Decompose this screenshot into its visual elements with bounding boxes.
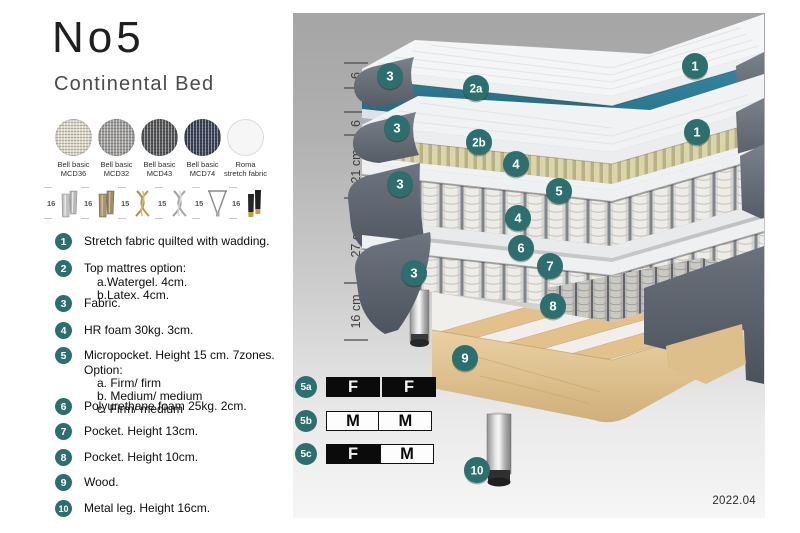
spec-item-text: Metal leg. Height 16cm.	[84, 501, 210, 516]
firmness-cell: F	[326, 444, 380, 464]
firmness-row-label: 5c	[295, 443, 317, 465]
spec-item-text: Pocket. Height 13cm.	[84, 424, 198, 439]
spec-item: 3 Fabric.	[55, 295, 121, 312]
callout-8: 8	[540, 293, 566, 321]
fabric-swatch-icon	[227, 119, 264, 156]
fabric-swatches: Bell basicMCD36 Bell basicMCD32 Bell bas…	[52, 119, 268, 178]
metal-leg-front	[487, 412, 511, 487]
svg-text:6: 6	[517, 241, 524, 256]
leg-height: 15	[195, 199, 203, 208]
leg-height: 16	[47, 199, 55, 208]
spec-item: 8 Pocket. Height 10cm.	[55, 449, 198, 466]
svg-text:9: 9	[461, 351, 468, 366]
spec-item-text: Polyurethane foam 25kg. 2cm.	[84, 399, 247, 414]
callout-6: 6	[508, 235, 534, 263]
spec-item-text: Fabric.	[84, 296, 121, 311]
spec-item-text: Stretch fabric quilted with wadding.	[84, 234, 269, 249]
fabric-swatch: Bell basicMCD32	[95, 119, 138, 178]
spec-item-badge: 9	[55, 474, 72, 491]
firmness-row-label: 5b	[295, 410, 317, 432]
spec-item: 4 HR foam 30kg. 3cm.	[55, 322, 193, 339]
callout-3b: 3	[384, 115, 410, 143]
spec-item: 6 Polyurethane foam 25kg. 2cm.	[55, 398, 247, 415]
cylinder-bronze-leg-icon	[94, 188, 119, 218]
leg-option: 15	[121, 186, 158, 220]
cylinder-black-gold-leg-icon	[242, 188, 267, 218]
leg-height: 16	[232, 199, 240, 208]
spec-item-text: Wood.	[84, 475, 118, 490]
spec-item-badge: 7	[55, 423, 72, 440]
callout-3: 3	[377, 63, 403, 91]
svg-text:10: 10	[471, 465, 484, 477]
version-label: 2022.04	[712, 495, 756, 507]
firmness-cell: F	[382, 377, 436, 397]
twisted-silver-leg-icon	[168, 188, 192, 218]
firmness-cell: F	[326, 377, 380, 397]
firmness-row: 5b M M	[295, 410, 432, 432]
callout-2b: 2b	[466, 129, 492, 157]
fabric-swatch-icon	[98, 119, 135, 156]
spec-subitem: a.Watergel. 4cm.	[97, 276, 187, 289]
svg-text:8: 8	[549, 299, 556, 314]
page-subtitle: Continental Bed	[54, 73, 214, 96]
callout-1: 1	[682, 53, 708, 81]
svg-text:7: 7	[546, 259, 553, 274]
callout-4: 4	[503, 151, 529, 179]
callout-5: 5	[546, 178, 572, 206]
svg-text:3: 3	[386, 69, 393, 84]
spec-item-text: Pocket. Height 10cm.	[84, 450, 198, 465]
callout-3c: 3	[387, 171, 413, 199]
callout-9: 9	[452, 345, 478, 373]
info-column: No5 Continental Bed Bell basicMCD36 Bell…	[0, 0, 293, 533]
fabric-swatch-icon	[55, 119, 92, 156]
fabric-swatch-label: Bell basicMCD32	[100, 160, 132, 178]
firmness-cell: M	[326, 411, 380, 431]
leg-options: 16 16 15 15	[47, 186, 271, 220]
leg-height: 16	[84, 199, 92, 208]
cylinder-silver-leg-icon	[57, 188, 82, 218]
spec-item: 9 Wood.	[55, 474, 118, 491]
firmness-cell: M	[378, 411, 432, 431]
firmness-cells: F M	[326, 444, 434, 464]
svg-text:4: 4	[512, 157, 520, 172]
leg-option: 16	[47, 186, 84, 220]
callout-10: 10	[464, 457, 490, 485]
ruler-label: 6	[349, 120, 363, 127]
firmness-row-label: 5a	[295, 376, 317, 398]
callout-1b: 1	[684, 119, 710, 147]
fabric-swatch-icon	[141, 119, 178, 156]
firmness-row: 5a F F	[295, 376, 436, 398]
svg-text:1: 1	[691, 59, 698, 74]
diagram-panel: 6 6 21 cm 27 cm 16 cm	[293, 13, 765, 518]
callout-4b: 4	[505, 205, 531, 233]
firmness-cells: M M	[326, 411, 432, 431]
fabric-swatch-label: Bell basicMCD74	[186, 160, 218, 178]
svg-text:5: 5	[555, 184, 562, 199]
callout-2a: 2a	[463, 75, 489, 103]
svg-text:3: 3	[410, 266, 417, 281]
svg-text:3: 3	[396, 177, 403, 192]
leg-option: 16	[84, 186, 121, 220]
fabric-swatch-icon	[184, 119, 221, 156]
svg-text:1: 1	[693, 125, 700, 140]
callout-3d: 3	[401, 260, 427, 288]
page-title: No5	[52, 14, 145, 62]
spec-item-badge: 10	[55, 500, 72, 517]
leg-option: 15	[195, 186, 232, 220]
firmness-cells: F F	[326, 377, 436, 397]
svg-text:4: 4	[514, 211, 522, 226]
fabric-swatch: Bell basicMCD43	[138, 119, 181, 178]
firmness-cell: M	[380, 444, 434, 464]
spec-item-badge: 8	[55, 449, 72, 466]
fabric-swatch-label: Romastretch fabric	[224, 160, 267, 178]
leg-height: 15	[158, 199, 166, 208]
firmness-row: 5c F M	[295, 443, 434, 465]
spec-item-badge: 2	[55, 260, 72, 277]
fabric-swatch-label: Bell basicMCD36	[57, 160, 89, 178]
spec-item-text: HR foam 30kg. 3cm.	[84, 323, 193, 338]
twisted-gold-leg-icon	[131, 188, 155, 218]
fabric-end-cap	[353, 112, 419, 163]
leg-height: 15	[121, 199, 129, 208]
svg-text:3: 3	[393, 121, 400, 136]
hairpin-leg-icon	[205, 188, 230, 218]
spec-item-badge: 1	[55, 233, 72, 250]
spec-item: 7 Pocket. Height 13cm.	[55, 423, 198, 440]
fabric-swatch-label: Bell basicMCD43	[143, 160, 175, 178]
leg-option: 16	[232, 186, 269, 220]
spec-item: 10 Metal leg. Height 16cm.	[55, 500, 210, 517]
spec-item-badge: 5	[55, 347, 72, 364]
leg-option: 15	[158, 186, 195, 220]
spec-item-badge: 3	[55, 295, 72, 312]
svg-text:2b: 2b	[472, 137, 485, 149]
svg-text:2a: 2a	[470, 83, 483, 95]
callout-7: 7	[537, 253, 563, 281]
spec-item-badge: 6	[55, 398, 72, 415]
spec-item: 1 Stretch fabric quilted with wadding.	[55, 233, 269, 250]
spec-item-badge: 4	[55, 322, 72, 339]
fabric-swatch: Bell basicMCD36	[52, 119, 95, 178]
fabric-swatch: Romastretch fabric	[224, 119, 267, 178]
fabric-swatch: Bell basicMCD74	[181, 119, 224, 178]
